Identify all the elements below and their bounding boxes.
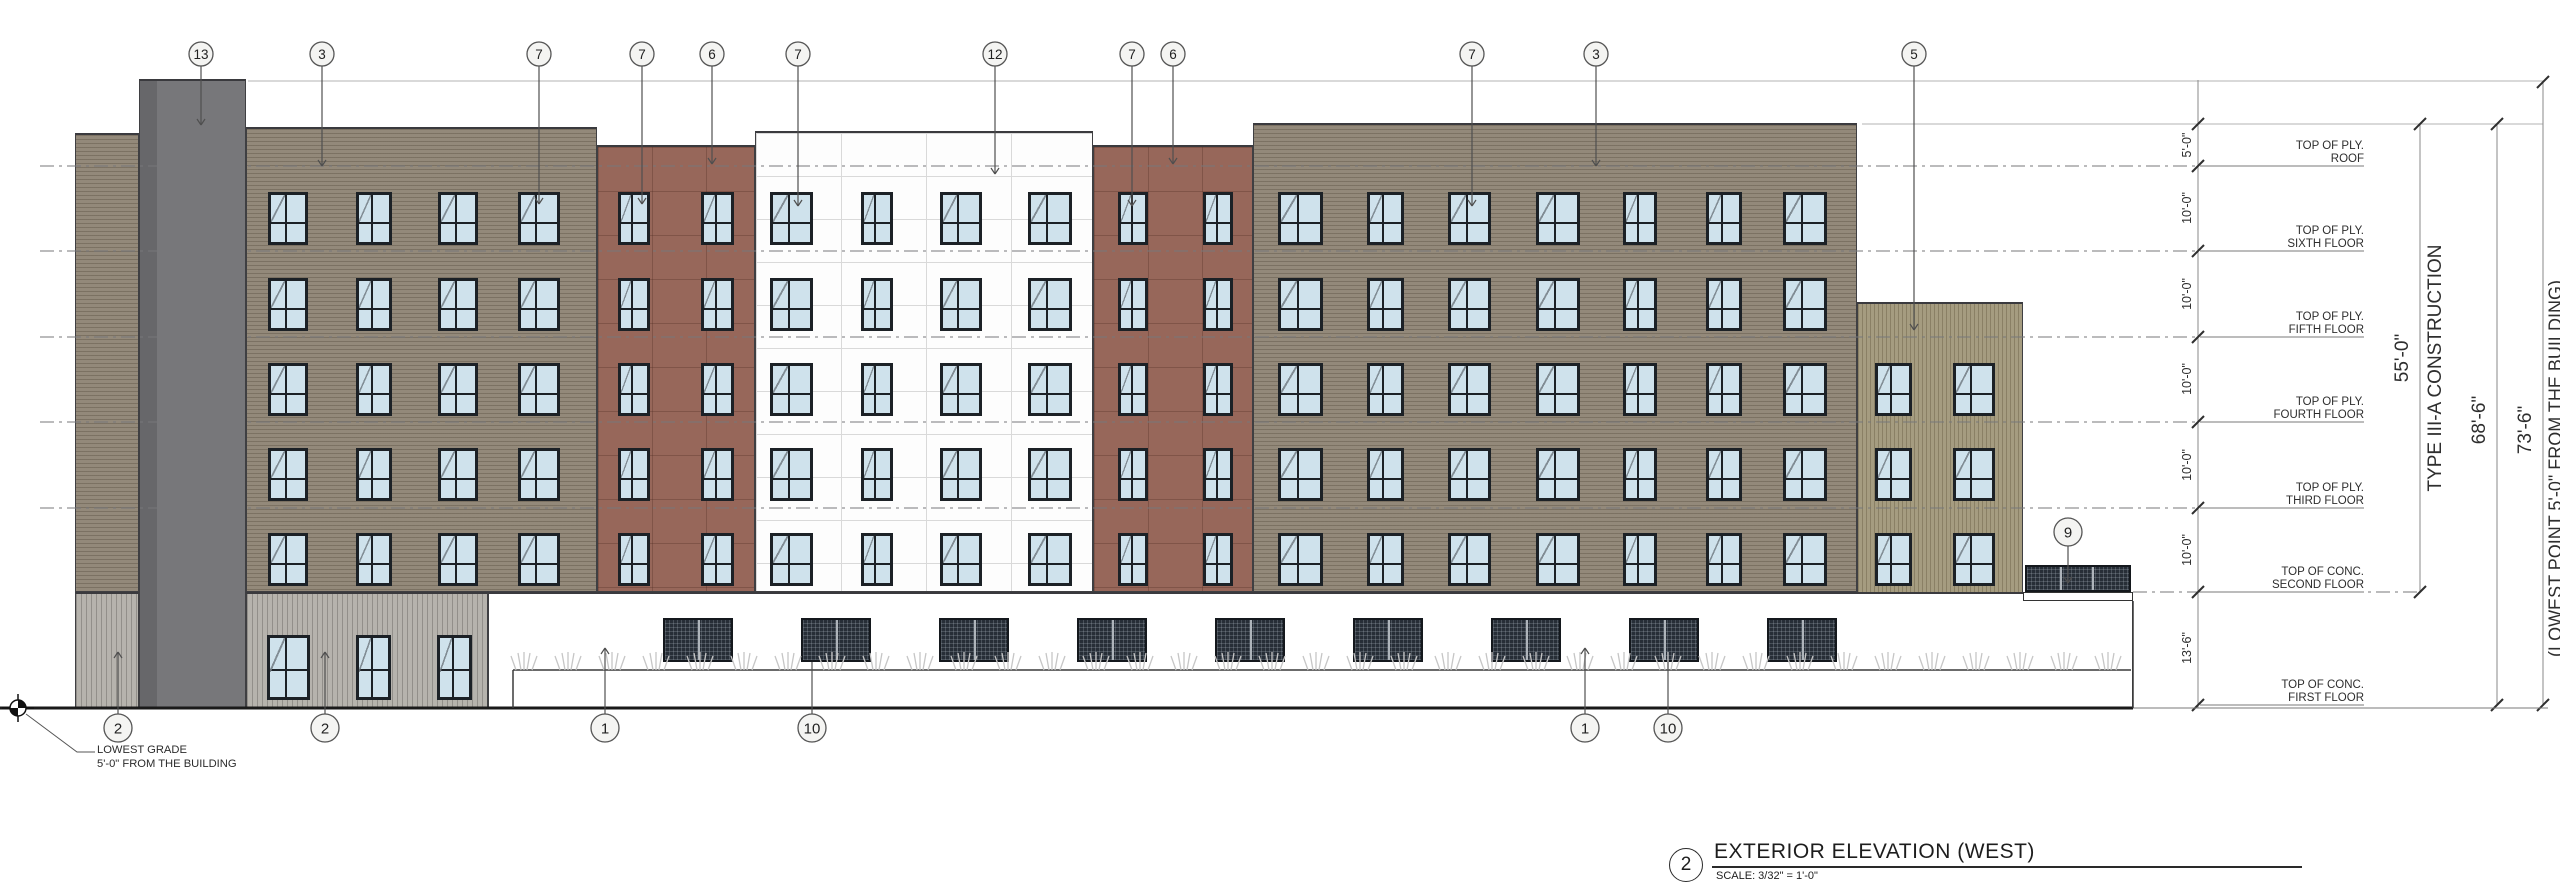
construction-type-label: TYPE III-A CONSTRUCTION xyxy=(2425,203,2447,533)
floor-level-label-line1: TOP OF PLY. xyxy=(2204,140,2364,153)
floor-level-label-line1: TOP OF PLY. xyxy=(2204,311,2364,324)
keynote-bubble: 7 xyxy=(1460,42,1484,66)
floor-level-label-line2: FIRST FLOOR xyxy=(2204,692,2364,705)
leader-arrowhead xyxy=(2068,577,2072,583)
svg-text:3: 3 xyxy=(1592,47,1600,62)
drawing-title: EXTERIOR ELEVATION (WEST) xyxy=(1714,840,2035,864)
keynote-bubble: 10 xyxy=(1654,714,1682,742)
keynote-bubble: 7 xyxy=(527,42,551,66)
keynote-bubble: 6 xyxy=(1161,42,1185,66)
title-underline xyxy=(1712,866,2302,868)
svg-text:10: 10 xyxy=(1660,720,1677,737)
lowest-grade-note: LOWEST GRADE 5'-0" FROM THE BUILDING xyxy=(97,744,237,771)
grade-datum-marker xyxy=(2,694,34,722)
story-dimension-text: 10'-0" xyxy=(2180,515,2194,585)
svg-text:9: 9 xyxy=(2064,524,2072,541)
floor-level-label-line1: TOP OF PLY. xyxy=(2204,396,2364,409)
lowest-grade-note-line2: 5'-0" FROM THE BUILDING xyxy=(97,758,237,772)
svg-text:7: 7 xyxy=(1468,47,1476,62)
floor-level-label-line1: TOP OF CONC. xyxy=(2204,679,2364,692)
floor-level-label-line1: TOP OF PLY. xyxy=(2204,482,2364,495)
floor-level-label: TOP OF PLY.ROOF xyxy=(2204,140,2364,165)
svg-text:3: 3 xyxy=(318,47,326,62)
floor-level-label-line2: SECOND FLOOR xyxy=(2204,579,2364,592)
svg-text:1: 1 xyxy=(1581,720,1589,737)
svg-text:7: 7 xyxy=(1128,47,1136,62)
svg-text:7: 7 xyxy=(794,47,802,62)
svg-text:6: 6 xyxy=(708,47,716,62)
story-dimension-text: 10'-0" xyxy=(2180,344,2194,414)
story-dimension-text: 13'-6" xyxy=(2180,613,2194,683)
svg-text:7: 7 xyxy=(535,47,543,62)
overall-dimension-text: 73'-6" xyxy=(2515,375,2537,485)
planting-hatch xyxy=(511,652,2121,670)
floor-level-label-line1: TOP OF PLY. xyxy=(2204,225,2364,238)
detail-number: 2 xyxy=(1681,854,1692,876)
leader-arrowhead xyxy=(201,119,205,125)
floor-level-label: TOP OF CONC.FIRST FLOOR xyxy=(2204,679,2364,704)
elevation-drawing-sheet: 13 3 7 7 6 7 12 7 6 7 3 5 2 2 1 10 1 10 … xyxy=(0,0,2560,882)
floor-level-label-line2: FOURTH FLOOR xyxy=(2204,409,2364,422)
keynote-bubble: 7 xyxy=(786,42,810,66)
keynote-bubble: 2 xyxy=(104,714,132,742)
floor-level-label-line2: FIFTH FLOOR xyxy=(2204,324,2364,337)
floor-level-label: TOP OF PLY.FIFTH FLOOR xyxy=(2204,311,2364,336)
keynote-bubble: 3 xyxy=(1584,42,1608,66)
keynote-bubble: 2 xyxy=(311,714,339,742)
svg-text:7: 7 xyxy=(638,47,646,62)
svg-text:5: 5 xyxy=(1910,47,1918,62)
lowest-point-note: (LOWEST POINT 5'-0" FROM THE BUILDING) xyxy=(2546,249,2560,689)
floor-level-label-line2: ROOF xyxy=(2204,153,2364,166)
drawing-scale: SCALE: 3/32" = 1'-0" xyxy=(1716,870,1818,882)
svg-text:1: 1 xyxy=(601,720,609,737)
keynote-bubble: 6 xyxy=(700,42,724,66)
svg-text:2: 2 xyxy=(114,720,122,737)
svg-text:10: 10 xyxy=(804,720,821,737)
story-dimension-text: 10'-0" xyxy=(2180,430,2194,500)
floor-level-label-line2: SIXTH FLOOR xyxy=(2204,238,2364,251)
floor-level-label: TOP OF PLY.FOURTH FLOOR xyxy=(2204,396,2364,421)
overall-dimension-text: 55'-0" xyxy=(2392,303,2414,413)
keynote-bubble: 1 xyxy=(1571,714,1599,742)
keynote-bubble: 13 xyxy=(189,42,213,66)
story-dimension-text: 10'-0" xyxy=(2180,259,2194,329)
svg-text:2: 2 xyxy=(321,720,329,737)
overall-dimension-text: 68'-6" xyxy=(2469,365,2491,475)
keynote-bubble: 7 xyxy=(630,42,654,66)
keynote-bubble: 10 xyxy=(798,714,826,742)
keynote-bubble: 9 xyxy=(2054,518,2082,546)
lowest-grade-note-line1: LOWEST GRADE xyxy=(97,744,237,758)
grade-note-leader xyxy=(26,714,95,752)
story-dimension-text: 5'-0" xyxy=(2180,110,2194,180)
story-dimension-text: 10'-0" xyxy=(2180,173,2194,243)
keynote-bubble: 3 xyxy=(310,42,334,66)
floor-level-label: TOP OF PLY.THIRD FLOOR xyxy=(2204,482,2364,507)
svg-text:13: 13 xyxy=(193,47,208,62)
floor-level-label-line1: TOP OF CONC. xyxy=(2204,566,2364,579)
svg-text:12: 12 xyxy=(987,47,1002,62)
keynote-bubble: 7 xyxy=(1120,42,1144,66)
keynote-bubble: 12 xyxy=(983,42,1007,66)
svg-text:6: 6 xyxy=(1169,47,1177,62)
keynote-bubble: 5 xyxy=(1902,42,1926,66)
floor-level-label: TOP OF PLY.SIXTH FLOOR xyxy=(2204,225,2364,250)
detail-number-bubble: 2 xyxy=(1669,848,1703,882)
floor-level-label-line2: THIRD FLOOR xyxy=(2204,495,2364,508)
floor-level-label: TOP OF CONC.SECOND FLOOR xyxy=(2204,566,2364,591)
annotation-linework: 13 3 7 7 6 7 12 7 6 7 3 5 2 2 1 10 1 10 … xyxy=(0,0,2560,882)
keynote-bubble: 1 xyxy=(591,714,619,742)
